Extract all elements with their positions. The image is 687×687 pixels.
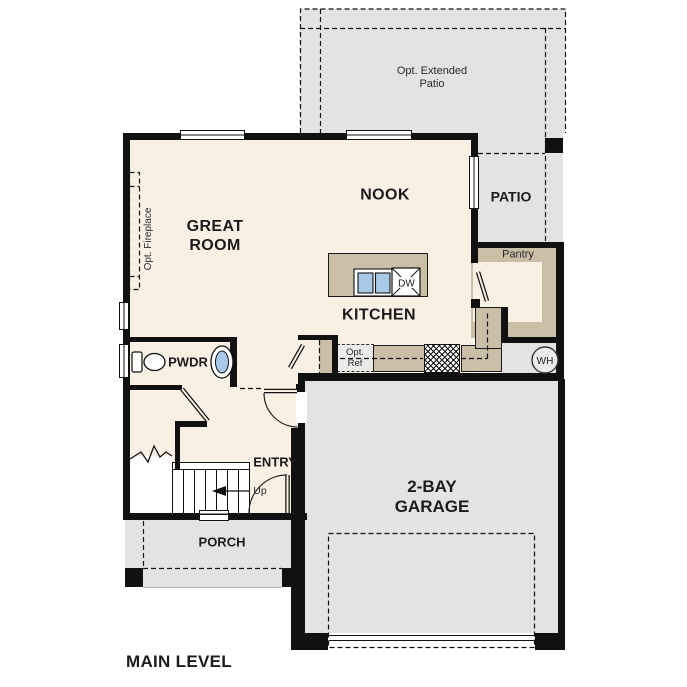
stair-up-arrow <box>212 486 250 496</box>
optional-fireplace-ticks <box>130 187 140 277</box>
stair-break-line <box>130 446 172 462</box>
powder-sink <box>211 346 233 378</box>
label-garage: 2-BAY GARAGE <box>395 477 470 517</box>
label-kitchen: KITCHEN <box>342 307 416 326</box>
floor-plan: DW WH Opt. Extended Patio NOOK GREAT ROO… <box>0 0 687 687</box>
linework-overlay: DW WH <box>0 0 687 687</box>
label-opt-ref: Opt. Ref <box>346 347 364 369</box>
dishwasher: DW <box>392 268 420 296</box>
dishwasher-label: DW <box>398 279 415 290</box>
label-entry: ENTRY <box>253 454 297 469</box>
water-heater: WH <box>532 347 558 373</box>
label-powder: PWDR <box>168 354 208 369</box>
label-nook: NOOK <box>360 187 410 206</box>
water-heater-label: WH <box>537 356 554 367</box>
garage-apron-dashed <box>329 534 535 648</box>
label-up: Up <box>253 485 266 497</box>
label-opt-fireplace: Opt. Fireplace <box>143 208 155 271</box>
label-patio: PATIO <box>491 189 532 206</box>
powder-door <box>182 389 208 421</box>
toilet <box>132 352 165 372</box>
label-porch: PORCH <box>199 534 246 549</box>
label-extended-patio: Opt. Extended Patio <box>397 65 467 91</box>
label-main-level: MAIN LEVEL <box>126 652 232 672</box>
pantry-door <box>478 272 487 301</box>
label-pantry: Pantry <box>502 249 534 262</box>
island-sink <box>354 269 393 296</box>
kitchen-passage-door <box>290 345 303 368</box>
label-great-room: GREAT ROOM <box>187 218 244 256</box>
optional-fireplace-outline <box>130 173 140 290</box>
garage-entry-door <box>264 391 298 427</box>
